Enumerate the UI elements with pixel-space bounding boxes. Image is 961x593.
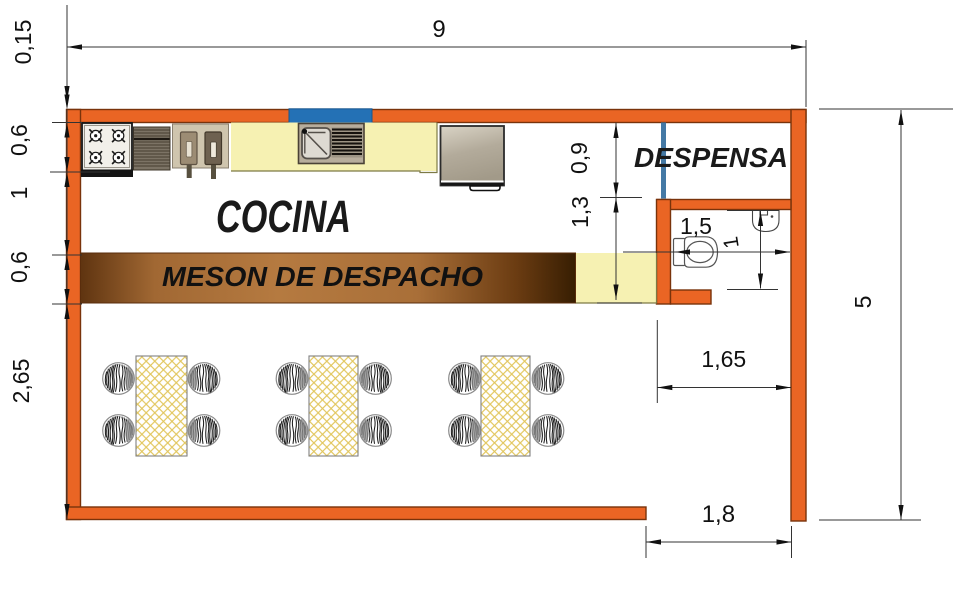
- svg-text:1: 1: [6, 187, 32, 200]
- svg-text:MESON DE DESPACHO: MESON DE DESPACHO: [162, 261, 483, 292]
- svg-text:9: 9: [432, 16, 445, 43]
- svg-text:DESPENSA: DESPENSA: [634, 142, 788, 173]
- svg-text:1,5: 1,5: [680, 213, 712, 239]
- svg-text:COCINA: COCINA: [216, 191, 351, 242]
- svg-text:0,9: 0,9: [566, 142, 592, 174]
- svg-text:0,15: 0,15: [10, 20, 36, 65]
- svg-text:5: 5: [850, 296, 876, 309]
- svg-text:1,3: 1,3: [567, 196, 593, 228]
- svg-text:0,6: 0,6: [6, 251, 32, 283]
- svg-text:0,6: 0,6: [6, 124, 32, 156]
- svg-text:1,65: 1,65: [701, 346, 746, 372]
- svg-text:1,8: 1,8: [702, 501, 735, 528]
- svg-text:2,65: 2,65: [8, 359, 34, 404]
